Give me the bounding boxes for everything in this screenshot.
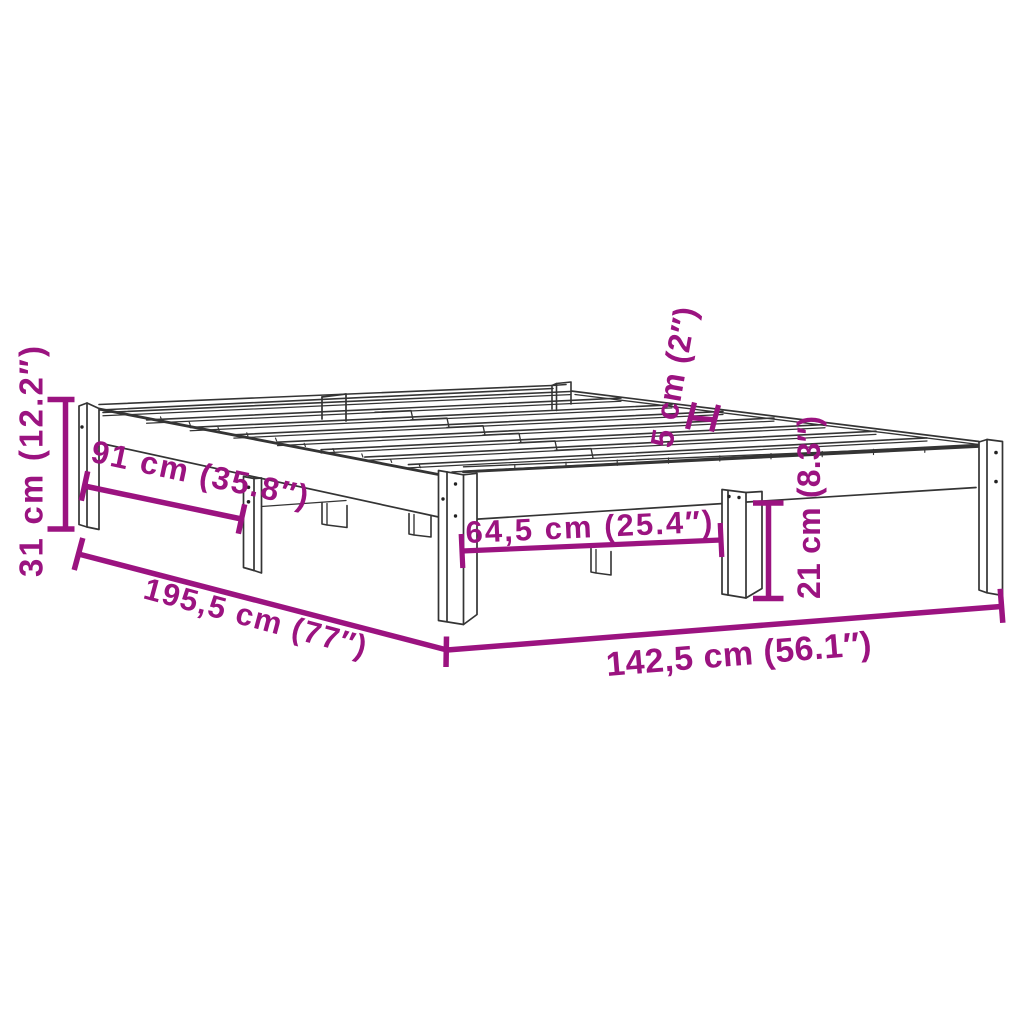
svg-text:31 cm (12.2″): 31 cm (12.2″) [13,346,50,577]
svg-text:21 cm (8.3″): 21 cm (8.3″) [791,416,827,599]
